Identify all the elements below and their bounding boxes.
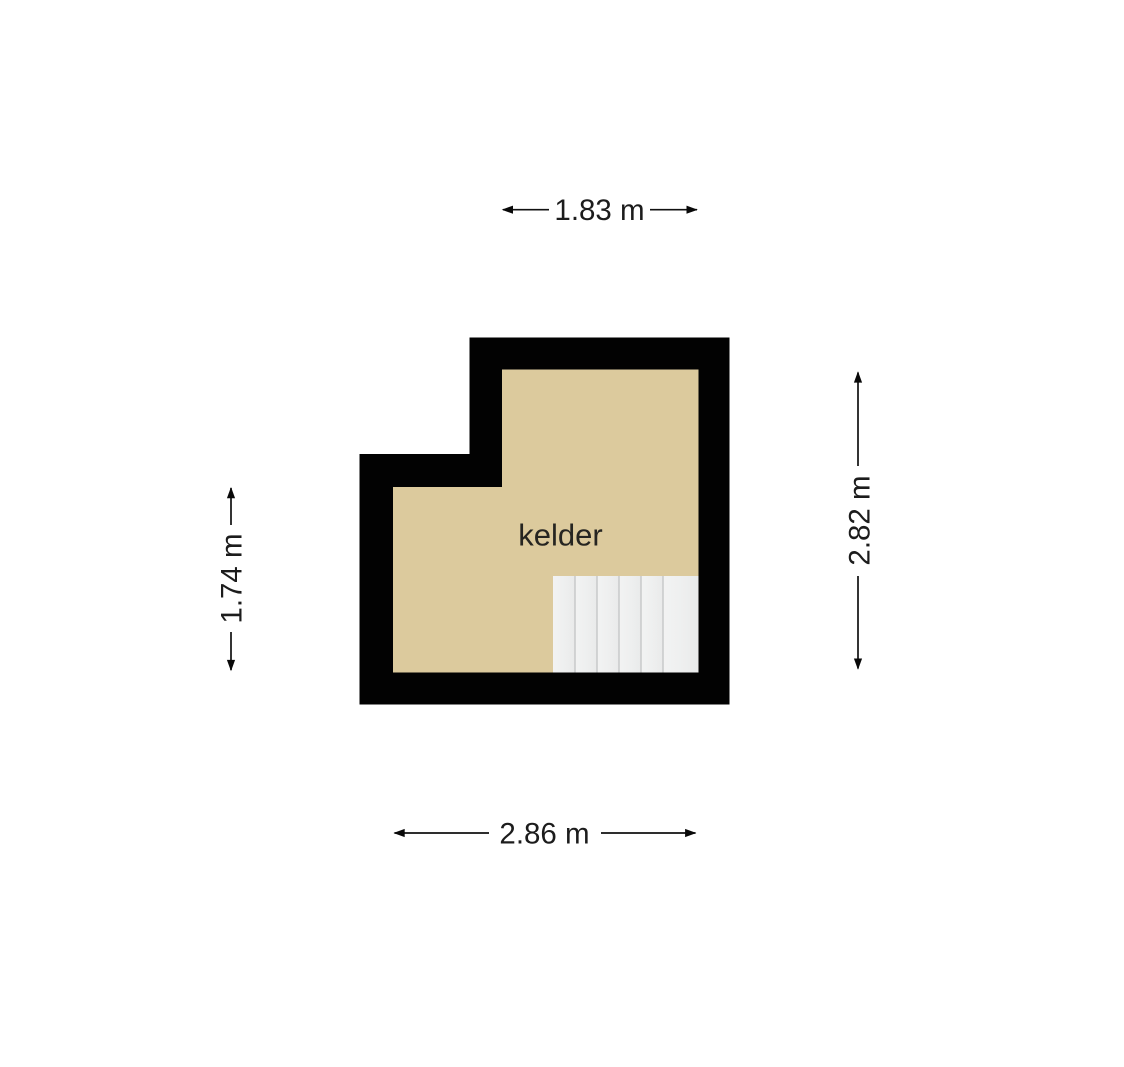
svg-text:1.83 m: 1.83 m xyxy=(554,194,644,227)
svg-text:kelder: kelder xyxy=(518,518,602,553)
svg-text:2.82 m: 2.82 m xyxy=(844,475,877,565)
svg-text:2.86 m: 2.86 m xyxy=(499,817,589,850)
svg-text:1.74 m: 1.74 m xyxy=(216,533,249,623)
